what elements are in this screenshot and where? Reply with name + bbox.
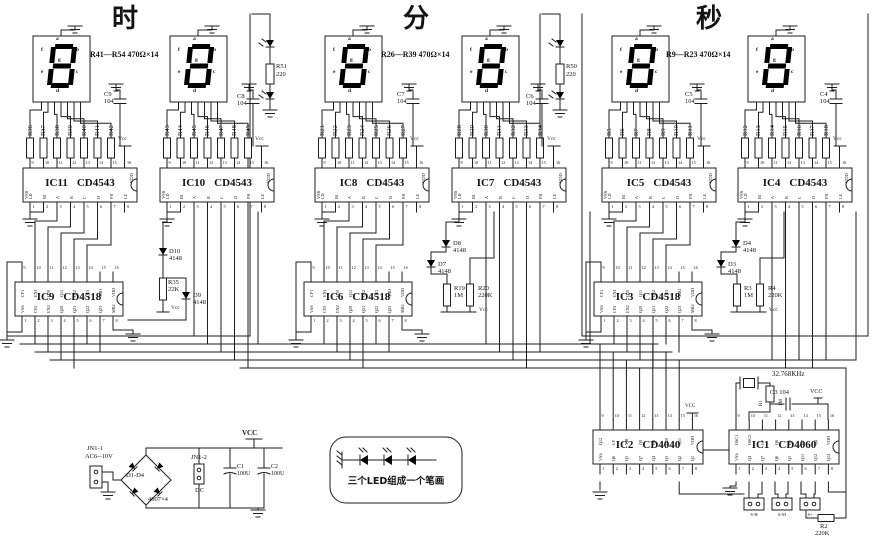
pin-number: 3 (630, 319, 632, 323)
resistor-symbol (556, 64, 564, 84)
segment-letter: f (41, 48, 43, 54)
pin-number: 10 (45, 161, 49, 165)
resistor-label: R16 (797, 125, 804, 136)
pin-number: 9 (747, 161, 749, 165)
pin-number: 9 (313, 266, 315, 270)
pin-number: 1 (462, 205, 464, 209)
resistor-symbol (191, 138, 198, 158)
ic-pin-label: VSS (604, 191, 609, 199)
pin-number: 11 (50, 266, 54, 270)
ic-pin-label: VSS (25, 191, 30, 199)
segment-letter: b (505, 48, 508, 54)
ic-pin-label: LE (124, 194, 128, 199)
ic-id: IC2 (616, 439, 634, 451)
resistor-symbol (81, 138, 88, 158)
pin-number: 8 (556, 205, 558, 209)
ground-symbol (263, 110, 277, 117)
diode-symbol (556, 40, 564, 47)
resistor-label: R36 (28, 125, 35, 136)
ic-pin-label: Q23 (678, 306, 682, 313)
pin-number: 11 (351, 161, 355, 165)
pin-number: 6 (379, 319, 381, 323)
resistor-label: R23 (347, 125, 354, 136)
ic-pin-label: B (207, 196, 211, 199)
pin-number: 15 (828, 161, 832, 165)
pin-number: 6 (100, 205, 102, 209)
ic-type: CD4543 (503, 177, 541, 189)
resistor-value: 220 (276, 72, 286, 79)
ic-pin-label: LE (703, 194, 707, 199)
resistor-label: R9 (661, 128, 668, 136)
ic-pin-label: Q14 (827, 454, 831, 461)
pin-number: 9 (461, 161, 463, 165)
segment-letter: b (655, 48, 658, 54)
ground-symbol (289, 340, 303, 347)
pin-number: 1 (739, 467, 741, 471)
pin-number: 14 (378, 266, 382, 270)
colon-led-column (252, 14, 277, 117)
diode-symbol (442, 240, 450, 247)
ic-pin-label: LD (458, 193, 462, 199)
capacitor-value: 104 (237, 101, 247, 108)
ic-id: IC1 (752, 439, 770, 451)
resistor-symbol (40, 138, 47, 158)
pin-number: 2 (46, 205, 48, 209)
segment-letter: c (655, 70, 657, 76)
vcc-label: Vcc (479, 308, 488, 314)
pin-number: 9 (603, 266, 605, 270)
ic-pin-label: MR2 (691, 304, 695, 313)
switch-label: S+ (800, 513, 820, 518)
pin-number: 16 (694, 414, 698, 418)
resistor-symbol (231, 138, 238, 158)
pin-number: 5 (224, 205, 226, 209)
seven-segment-display (462, 26, 519, 102)
pin-number: 10 (751, 414, 755, 418)
ic-pin-label: PH (825, 194, 829, 199)
diode-symbol (182, 292, 190, 299)
switch-label: S-H (744, 513, 764, 518)
pin-number: 15 (817, 414, 821, 418)
pin-number: 12 (63, 266, 67, 270)
resistor-symbol (94, 138, 101, 158)
pin-number: 5 (666, 205, 668, 209)
pin-number: 15 (113, 161, 117, 165)
crystal-label: 32.768KHz (772, 371, 804, 378)
pin-number: 9 (24, 266, 26, 270)
resistor-label: R1 (759, 400, 764, 406)
pin-number: 3 (51, 319, 53, 323)
resistor-symbol (523, 138, 530, 158)
connector-sublabel: AC6--10V (85, 454, 113, 461)
vcc-label: VCC (810, 389, 822, 395)
pin-number: 1 (170, 205, 172, 209)
pin-number: 15 (102, 266, 106, 270)
pin-number: 12 (352, 266, 356, 270)
pin-number: 8 (842, 205, 844, 209)
segment-letter: d (193, 89, 196, 95)
ic-id: IC8 (340, 177, 358, 189)
ic-pin-label: PH (402, 194, 406, 199)
pin-number: 12 (642, 266, 646, 270)
pin-number: 10 (624, 161, 628, 165)
resistor-symbol (818, 515, 834, 522)
pin-number: 8 (116, 319, 118, 323)
ic-pin-label: Q4 (748, 456, 752, 461)
pin-number: 9 (602, 414, 604, 418)
resistor-value: 1M (454, 293, 463, 300)
ic-id: IC4 (763, 177, 781, 189)
vcc-label: Vcc (547, 137, 556, 143)
ic-pin-label: B (70, 196, 74, 199)
pin-number: 14 (236, 161, 240, 165)
ic-pin-label: VSS (740, 191, 745, 199)
pin-number: 6 (679, 205, 681, 209)
pin-number: 7 (818, 467, 820, 471)
pin-number: 13 (86, 161, 90, 165)
vcc-label: Vcc (171, 306, 180, 312)
ic-type: CD4543 (789, 177, 827, 189)
segment-letter: e (470, 70, 472, 76)
ic-pin-label: VSS (317, 191, 322, 199)
pin-number: 15 (391, 266, 395, 270)
ic-pin-label: CP2 (613, 306, 617, 313)
pin-number: 16 (694, 266, 698, 270)
ic-pin-label: VSS (735, 453, 739, 461)
pin-number: 12 (501, 161, 505, 165)
resistor-label: R22 (333, 125, 340, 136)
pin-number: 13 (655, 266, 659, 270)
resistor-symbol (164, 138, 171, 158)
ic-pin-label: Q23 (388, 306, 392, 313)
diode-value: 4148 (743, 248, 756, 255)
ic-pin-label: CP2 (323, 306, 327, 313)
ic-pin-label: B (785, 196, 789, 199)
pin-number: 16 (127, 161, 131, 165)
pin-number: 7 (543, 205, 545, 209)
capacitor-label: C1 (237, 464, 244, 470)
segment-letter: e (620, 70, 622, 76)
resistor-value: 220K (768, 293, 782, 300)
vcc-label: VCC (242, 430, 257, 437)
pin-number: 12 (364, 161, 368, 165)
vcc-label: Vcc (255, 137, 264, 143)
resistor-label: R41 (95, 125, 102, 136)
pin-number: 8 (831, 467, 833, 471)
pin-number: 6 (805, 467, 807, 471)
ic-id: IC10 (182, 177, 205, 189)
resistor-label: R31 (497, 125, 504, 136)
capacitor-value: 104 (685, 99, 695, 106)
pin-number: 14 (814, 161, 818, 165)
seven-segment-display (748, 26, 805, 102)
resistor-label: R13 (756, 125, 763, 136)
resistor-symbol (245, 138, 252, 158)
bridge-part-label: 4007×4 (148, 497, 168, 504)
pin-number: 7 (406, 205, 408, 209)
pin-number: 2 (752, 467, 754, 471)
resistor-value: 220 (566, 72, 576, 79)
resistor-label: R44 (178, 125, 185, 136)
ic-pin-label: LE (839, 194, 843, 199)
pin-number: 16 (556, 161, 560, 165)
resistor-symbol (218, 138, 225, 158)
diode-symbol (717, 260, 725, 267)
ic-pin-label: BI (335, 195, 339, 199)
diode-symbol (266, 40, 274, 47)
resistor-symbol (782, 138, 789, 158)
connector-symbol (744, 498, 764, 510)
ic-pin-label: VSS (310, 305, 314, 313)
pin-number: 2 (617, 319, 619, 323)
ic-type: CD4543 (77, 177, 115, 189)
ic-type: CD4518 (642, 291, 680, 303)
pin-number: 4 (652, 205, 654, 209)
section-title: 分 (403, 6, 429, 32)
pin-number: 3 (197, 205, 199, 209)
ic-pin-label: PH (110, 194, 114, 199)
resistor-label: R37 (41, 125, 48, 136)
pin-number: 5 (77, 319, 79, 323)
vcc-label: Vcc (769, 308, 778, 314)
schematic-graphics (0, 0, 874, 550)
ground-symbol (579, 340, 593, 347)
pin-number: 2 (616, 467, 618, 471)
ground-symbol (101, 492, 115, 499)
capacitor-value: 104 (397, 99, 407, 106)
resistor-label: R17 (810, 125, 817, 136)
pin-number: 5 (379, 205, 381, 209)
resistor-value: 22K (168, 287, 179, 294)
pin-number: 9 (169, 161, 171, 165)
pin-number: 12 (651, 161, 655, 165)
resistor-label: R25 (374, 125, 381, 136)
resistor-symbol (619, 138, 626, 158)
segment-letter: e (756, 70, 758, 76)
segment-letter: f (333, 48, 335, 54)
ground-symbol (126, 334, 140, 341)
section-title: 时 (112, 6, 138, 32)
resistor-symbol (646, 138, 653, 158)
segment-letter: g (773, 58, 776, 64)
ic-pin-label: PH (247, 194, 251, 199)
pin-number: 14 (391, 161, 395, 165)
ic-label: IC4CD4543 (738, 178, 852, 189)
diode-value: 4148 (453, 248, 466, 255)
pin-number: 9 (32, 161, 34, 165)
ic-type: CD4518 (63, 291, 101, 303)
pin-number: 8 (405, 319, 407, 323)
ic-pin-label: VSS (600, 305, 604, 313)
capacitor-label: C3 104 (770, 390, 789, 397)
resistor-label: R39 (68, 125, 75, 136)
bridge-diode (129, 463, 137, 471)
pin-number: 10 (474, 161, 478, 165)
pin-number: 1 (33, 205, 35, 209)
pin-number: 3 (352, 205, 354, 209)
pin-number: 11 (59, 161, 63, 165)
ic-id: IC5 (627, 177, 645, 189)
pin-number: 7 (103, 319, 105, 323)
ic-pin-label: LD (744, 193, 748, 199)
ic-pin-label: Q21 (362, 306, 366, 313)
ground-symbol (315, 219, 329, 226)
resistor-label: R49 (246, 125, 253, 136)
pin-number: 15 (405, 161, 409, 165)
ic-label: IC10CD4543 (160, 178, 274, 189)
resistor-symbol (266, 64, 274, 84)
pin-number: 16 (404, 266, 408, 270)
ic-pin-label: Q12 (814, 454, 818, 461)
resistor-value: 220K (815, 531, 829, 538)
ic-pin-label: C (83, 196, 87, 199)
capacitor-value: 104 (526, 101, 536, 108)
resistor-label: R32 (511, 125, 518, 136)
ic-pin-label: Q22 (86, 306, 90, 313)
ic-pin-label: Q20 (60, 306, 64, 313)
pin-number: 6 (529, 205, 531, 209)
diode-value: 4148 (193, 300, 206, 307)
pin-number: 8 (127, 205, 129, 209)
pin-number: 7 (682, 467, 684, 471)
pin-number: 11 (488, 161, 492, 165)
segment-letter: f (620, 48, 622, 54)
diode-symbol (556, 92, 564, 99)
resistor-label: R45 (192, 125, 199, 136)
ic-pin-label: Q11 (801, 454, 805, 461)
seven-segment-display (170, 26, 227, 102)
pin-number: 1 (604, 319, 606, 323)
schematic-board: abcdefgR369R3710R3811R3912R4013R4114R421… (0, 0, 874, 550)
pin-number: 5 (802, 205, 804, 209)
pin-number: 13 (801, 161, 805, 165)
ic-label: IC11CD4543 (23, 178, 137, 189)
resistor-symbol (755, 138, 762, 158)
ic-type: CD4518 (352, 291, 390, 303)
ic-pin-label: D (389, 196, 393, 199)
ic-pin-label: MR2 (401, 304, 405, 313)
resistor-label: R26 (387, 125, 394, 136)
diode-symbol (266, 92, 274, 99)
pin-number: 5 (791, 467, 793, 471)
resistor-symbol (496, 138, 503, 158)
ic-pin-label: Q20 (349, 306, 353, 313)
led-note-box (330, 437, 462, 503)
resistor-label: R28 (457, 125, 464, 136)
pin-number: 12 (72, 161, 76, 165)
pin-number: 14 (528, 161, 532, 165)
pin-number: 7 (682, 319, 684, 323)
bridge-diode (154, 488, 162, 496)
vcc-label: Vcc (697, 137, 706, 143)
ic-pin-label: Q20 (639, 306, 643, 313)
ic-pin-label: Q4 (652, 456, 656, 461)
resistor-label: R33 (524, 125, 531, 136)
pin-number: 8 (706, 205, 708, 209)
pin-number: 14 (804, 414, 808, 418)
resistor-symbol (687, 138, 694, 158)
pin-number: 11 (764, 414, 768, 418)
ic-pin-label: VSS (454, 191, 459, 199)
pin-number: 4 (502, 205, 504, 209)
ic-pin-label: LE (261, 194, 265, 199)
pin-number: 8 (695, 319, 697, 323)
segment-letter: d (635, 89, 638, 95)
ic-pin-label: VSS (599, 453, 603, 461)
resistor-symbol (27, 138, 34, 158)
pin-number: 13 (223, 161, 227, 165)
ic-pin-label: BI (180, 195, 184, 199)
electrolytic-cap (224, 448, 236, 508)
resistor-label: R6 (620, 128, 627, 136)
power-supply (90, 439, 282, 517)
ic-pin-label: PH (689, 194, 693, 199)
led-note-text: 三个LED组成一个笔画 (334, 477, 458, 487)
resistor-label: R5 (607, 128, 614, 136)
pin-number: 14 (99, 161, 103, 165)
ic-id: IC7 (477, 177, 495, 189)
pin-number: 1 (25, 319, 27, 323)
pin-number: 16 (842, 161, 846, 165)
pin-number: 3 (775, 205, 777, 209)
ic-pin-label: Q3 (665, 456, 669, 461)
ic-pin-label: A (56, 196, 60, 199)
pin-number: 11 (628, 414, 632, 418)
pin-number: 10 (760, 161, 764, 165)
segment-letter: f (756, 48, 758, 54)
diode-value: 4148 (438, 269, 451, 276)
ic-label: IC6CD4518 (304, 292, 412, 303)
pin-number: 11 (339, 266, 343, 270)
segment-letter: f (178, 48, 180, 54)
ic-id: IC9 (37, 291, 55, 303)
pin-number: 3 (340, 319, 342, 323)
ground-symbol (553, 110, 567, 117)
segment-letter: g (487, 58, 490, 64)
pin-number: 4 (778, 467, 780, 471)
pin-number: 13 (378, 161, 382, 165)
pin-number: 6 (90, 319, 92, 323)
pin-number: 15 (681, 414, 685, 418)
resistor-symbol (757, 284, 764, 306)
connector-symbol (194, 464, 204, 484)
resistor-symbol (177, 138, 184, 158)
resistor-symbol (734, 284, 741, 306)
pin-number: 4 (73, 205, 75, 209)
resistor-symbol (769, 138, 776, 158)
pin-number: 15 (681, 266, 685, 270)
pin-number: 4 (365, 205, 367, 209)
resistor-label: R42 (109, 125, 116, 136)
ic-pin-label: LD (166, 193, 170, 199)
resistor-label: R47 (219, 125, 226, 136)
pin-number: 8 (695, 467, 697, 471)
pin-number: 6 (237, 205, 239, 209)
segment-letter: f (470, 48, 472, 54)
pin-number: 1 (612, 205, 614, 209)
ic-pin-label: LE (553, 194, 557, 199)
pin-number: 12 (777, 414, 781, 418)
pin-number: 1 (325, 205, 327, 209)
diode-symbol (427, 260, 435, 267)
vcc-label: VCC (685, 404, 695, 409)
resistor-symbol (742, 138, 749, 158)
segment-letter: a (348, 37, 351, 43)
connector-label: JN1-2 (191, 455, 207, 462)
resistor-label: R18 (824, 125, 831, 136)
ic-pin-label: EN2 (47, 305, 51, 313)
pin-number: 5 (366, 319, 368, 323)
